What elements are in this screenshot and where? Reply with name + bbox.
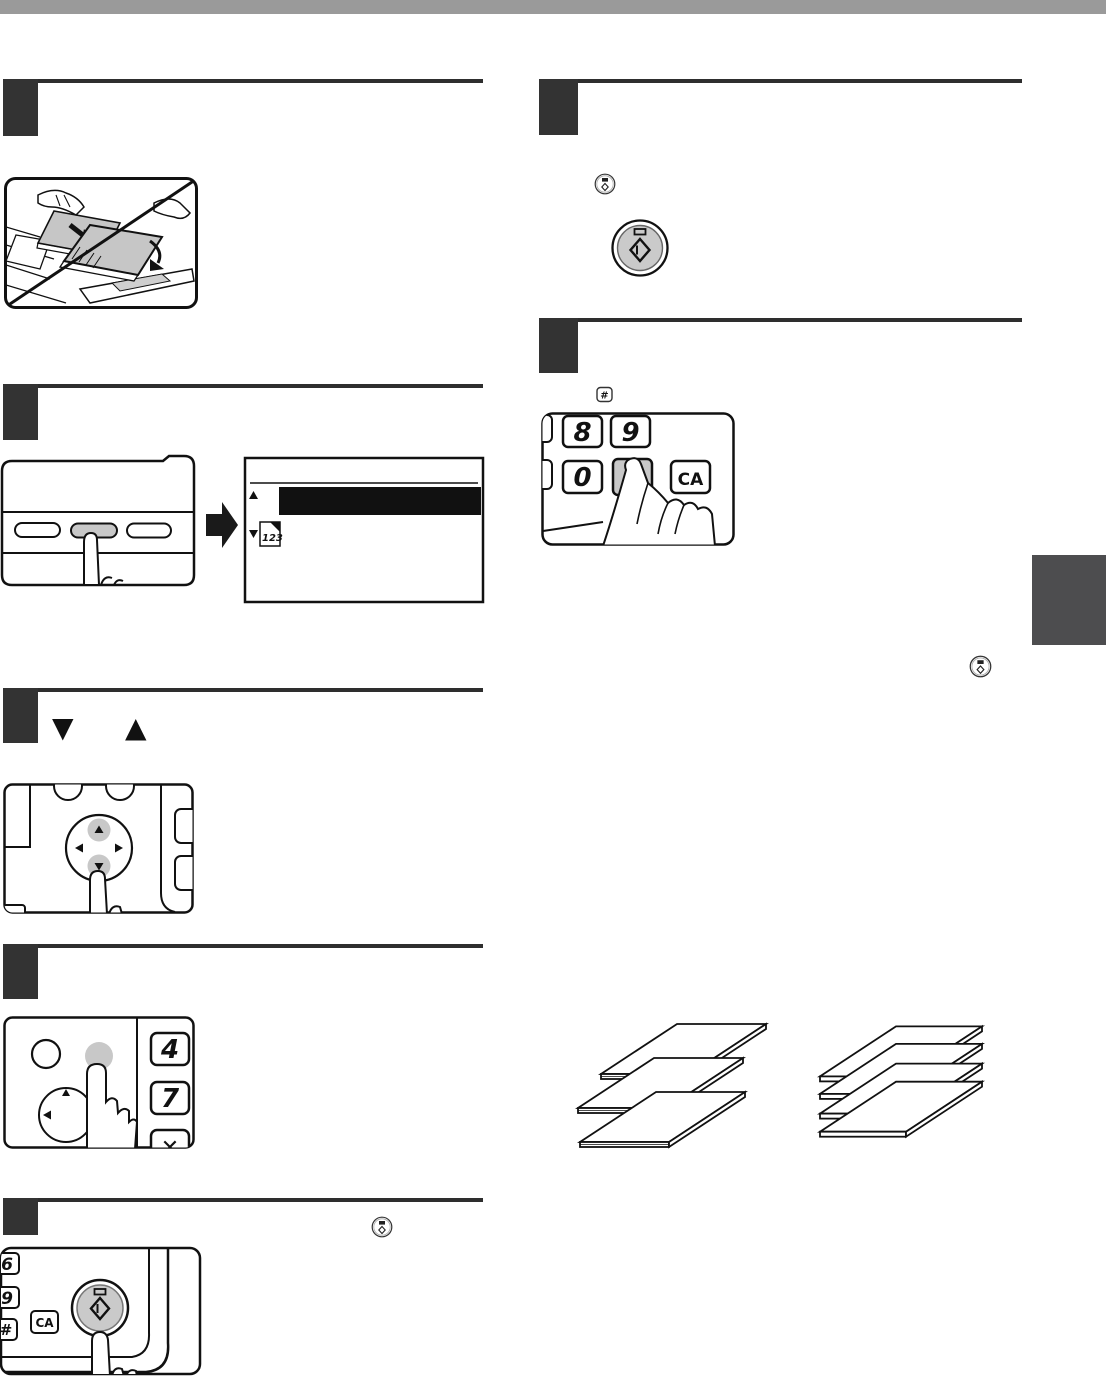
svg-text:9: 9	[621, 418, 639, 448]
right-step2-number-box	[539, 318, 578, 373]
operation-panel	[2, 456, 194, 585]
arrow-pad-partial	[39, 1088, 93, 1142]
selected-menu-row	[279, 487, 481, 515]
step2-menu-key-and-display-illustration: 123	[0, 452, 490, 607]
step1-originals-placement-illustration	[4, 177, 198, 309]
start-key-icon	[371, 1216, 393, 1238]
svg-text:9: 9	[1, 1289, 13, 1309]
svg-text:CA: CA	[678, 470, 704, 490]
start-key-icon	[594, 173, 616, 195]
start-key	[72, 1280, 128, 1336]
manual-page: 123 ▼ ▲	[0, 0, 1106, 1376]
svg-text:#: #	[600, 391, 608, 402]
offset-output-stack	[578, 1024, 766, 1147]
start-indicator	[635, 229, 646, 235]
side-key	[175, 856, 194, 890]
up-triangle-glyph: ▲	[125, 714, 147, 742]
svg-text:8: 8	[573, 418, 591, 448]
finger	[90, 871, 107, 914]
svg-text:7: 7	[161, 1084, 180, 1114]
output-stacks-illustration	[565, 1010, 995, 1150]
numeric-keys: 4 7 ✕	[151, 1033, 189, 1149]
straight-output-stack	[820, 1026, 982, 1136]
right-step1-rule	[578, 79, 1022, 83]
start-indicator	[95, 1289, 106, 1295]
round-key	[32, 1040, 60, 1068]
finger	[92, 1332, 110, 1376]
svg-text:0: 0	[573, 463, 591, 493]
step5-number-box	[3, 1198, 38, 1235]
step4-rule	[38, 944, 483, 948]
chapter-edge-tab	[1032, 555, 1106, 645]
start-key-icon	[969, 655, 992, 678]
finger	[84, 533, 99, 585]
step2-number-box	[3, 384, 38, 440]
down-triangle-glyph: ▼	[52, 714, 74, 742]
step3-number-box	[3, 688, 38, 743]
svg-text:✕: ✕	[161, 1136, 179, 1149]
svg-text:6: 6	[1, 1255, 13, 1275]
right-step2-rule	[578, 318, 1022, 322]
sort-badge-text: 123	[262, 533, 283, 544]
right-step1-number-box	[539, 79, 578, 135]
svg-text:4: 4	[160, 1035, 179, 1065]
display-screen: 123	[245, 458, 483, 602]
rightstep2-keypad-illustration: 8 9 0 # CA	[541, 412, 736, 546]
step3-arrow-pad-illustration	[3, 783, 194, 914]
page-top-bar	[0, 0, 1106, 14]
step5-start-key-illustration: 6 9 # CA	[0, 1245, 203, 1376]
step1-rule	[38, 79, 483, 83]
right-block-arrow	[206, 502, 238, 548]
svg-text:CA: CA	[35, 1316, 54, 1330]
right-key	[127, 524, 171, 538]
left-key	[15, 523, 60, 537]
step4-number-box	[3, 944, 38, 999]
step1-number-box	[3, 79, 38, 136]
sort-copy-icon: 123	[260, 522, 283, 546]
step4-copies-key-illustration: 4 7 ✕	[3, 1016, 195, 1149]
start-key-large-illustration	[610, 218, 670, 278]
hash-key-icon: #	[596, 386, 613, 403]
svg-text:#: #	[0, 1321, 12, 1339]
step3-rule	[38, 688, 483, 692]
side-key	[175, 809, 194, 843]
step2-rule	[38, 384, 483, 388]
step5-rule	[38, 1198, 483, 1202]
